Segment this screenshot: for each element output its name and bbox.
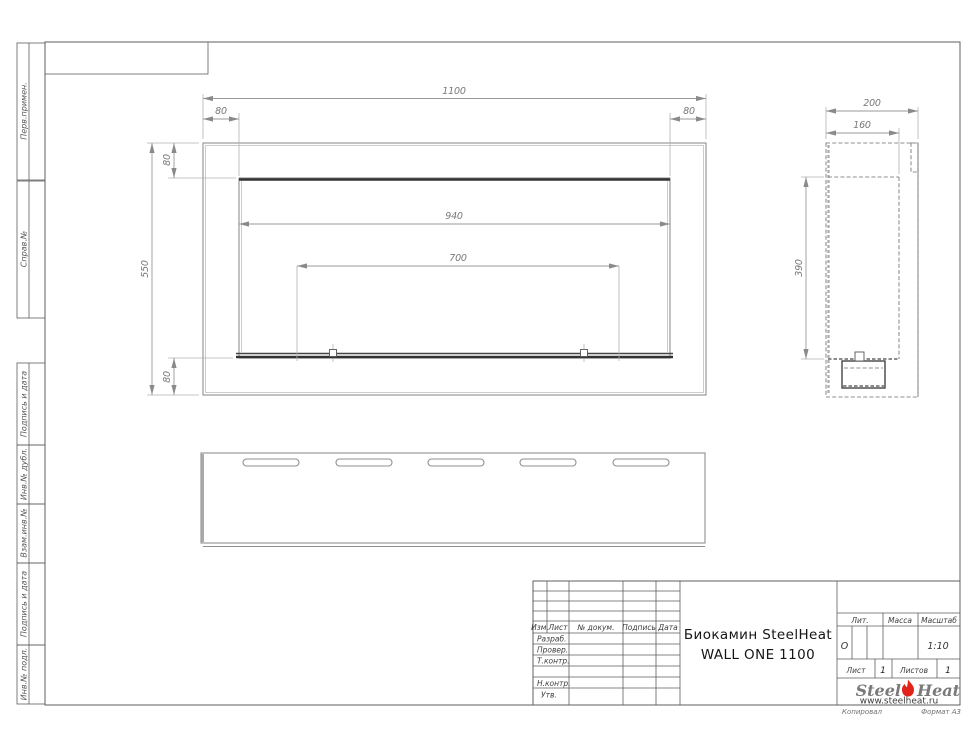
vent-slot-4 (520, 459, 576, 466)
left-margin-stamps: Перв.примен. Справ.№ Подпись и дата Инв.… (17, 43, 45, 704)
sheets-value: 1 (945, 666, 951, 676)
dim-ext-lines (297, 266, 619, 361)
burner-nozzle (855, 352, 864, 361)
col-dokum: № докум. (577, 623, 615, 632)
top-left-stamp-box (45, 42, 208, 74)
footer-format: Формат А3 (921, 708, 961, 716)
mass-label: Масса (888, 616, 912, 625)
side-burner-box (842, 352, 885, 388)
frame-border (45, 42, 960, 705)
row-nkontr: Н.контр. (537, 679, 571, 688)
dim-side-inner-depth: 160 (826, 120, 899, 174)
row-razrab: Разраб. (537, 635, 566, 644)
dim-front-margin-top: 80 (162, 143, 236, 178)
stamp-label: Взам.инв.№ (20, 508, 29, 557)
stamp-label: Инв.№ подл. (20, 648, 29, 701)
logo-url: www.steelheat.ru (860, 697, 938, 707)
bottom-view (201, 453, 705, 547)
dim-label: 80 (162, 371, 173, 383)
dim-label: 160 (853, 120, 871, 131)
sheet-value: 1 (880, 666, 886, 676)
dim-label: 940 (445, 211, 463, 222)
burner-mark (330, 350, 337, 357)
drawing-sheet: Перв.примен. Справ.№ Подпись и дата Инв.… (0, 0, 970, 750)
stamp-podpis-data-2: Подпись и дата (17, 563, 45, 645)
row-prover: Провер. (537, 646, 568, 655)
col-data: Дата (657, 623, 678, 632)
row-tkontr: Т.контр. (537, 657, 570, 666)
stamp-label: Подпись и дата (20, 371, 29, 437)
stamp-label: Инв.№ дубл. (20, 448, 29, 500)
row-utv: Утв. (541, 691, 557, 700)
dim-label: 550 (140, 260, 151, 278)
vent-slot-1 (243, 459, 299, 466)
dim-label: 390 (794, 259, 805, 277)
col-list: Лист (547, 623, 568, 632)
burner-box-outline (842, 361, 885, 388)
dim-label: 80 (215, 106, 227, 117)
stamp-label: Подпись и дата (20, 571, 29, 637)
drawing-canvas: Перв.примен. Справ.№ Подпись и дата Инв.… (0, 0, 970, 750)
front-burner-mark-left (330, 344, 337, 362)
side-top-bracket (911, 143, 918, 172)
front-view: 1100 80 80 550 80 80 (140, 86, 706, 395)
stamp-podpis-data-1: Подпись и дата (17, 363, 45, 445)
front-outer-body-inner-edge (206, 146, 704, 393)
scale-value: 1:10 (927, 641, 948, 652)
stamp-inv-dubl: Инв.№ дубл. (17, 445, 45, 504)
vent-slot-5 (613, 459, 669, 466)
stamp-sprav-no: Справ.№ (17, 181, 45, 318)
stamp-label: Перв.примен. (20, 82, 29, 140)
dim-ext-lines (826, 107, 918, 139)
footer-kopiroval: Копировал (842, 708, 883, 716)
dim-front-height: 550 (140, 143, 199, 395)
dim-front-inner-width: 940 (239, 211, 670, 224)
dim-ext-lines (203, 94, 706, 139)
vent-slot-3 (428, 459, 484, 466)
lit-value: О (841, 641, 849, 652)
plan-vent-slots (243, 459, 669, 466)
vent-slot-2 (336, 459, 392, 466)
stamp-perv-primen: Перв.примен. (17, 43, 45, 180)
side-view: 200 160 390 (794, 98, 918, 397)
dim-label: 80 (683, 106, 695, 117)
stamp-vzam-inv: Взам.инв.№ (17, 504, 45, 563)
steelheat-logo: Steel Heat www.steelheat.ru (856, 680, 961, 707)
dim-front-width: 1100 (203, 86, 706, 139)
dim-label: 700 (449, 253, 467, 264)
dim-ext-lines (147, 143, 199, 395)
front-burner-mark-right (581, 344, 588, 362)
sheet-frame (45, 42, 960, 705)
dim-label: 1100 (442, 86, 466, 97)
dim-label: 80 (162, 154, 173, 166)
dim-front-margin-left: 80 (203, 106, 239, 176)
doc-title-line2: WALL ONE 1100 (701, 647, 815, 663)
lit-label: Лит. (850, 616, 868, 625)
sheet-label: Лист (845, 666, 866, 675)
sheets-label: Листов (899, 666, 928, 675)
dim-side-opening-height: 390 (794, 177, 824, 359)
col-podpis: Подпись (622, 623, 656, 632)
title-block: Изм. Лист № докум. Подпись Дата Разраб. … (531, 581, 960, 707)
burner-mark (581, 350, 588, 357)
scale-label: Масштаб (921, 616, 957, 625)
front-firebox-opening (239, 178, 670, 358)
stamp-inv-podl: Инв.№ подл. (17, 645, 45, 704)
stamp-label: Справ.№ (20, 231, 29, 267)
dim-front-burner-width: 700 (297, 253, 619, 361)
doc-title-line1: Биокамин SteelHeat (684, 627, 832, 643)
dim-front-margin-right: 80 (670, 106, 706, 176)
col-izm: Изм. (531, 623, 549, 632)
dim-front-margin-bottom: 80 (162, 358, 233, 395)
flame-icon (902, 680, 914, 697)
dim-label: 200 (863, 98, 881, 109)
